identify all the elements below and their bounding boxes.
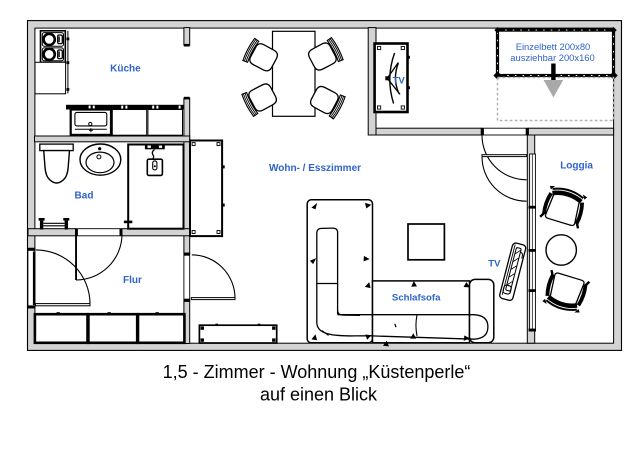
svg-text:ausziehbar 200x160: ausziehbar 200x160 xyxy=(510,52,594,63)
svg-text:Bad: Bad xyxy=(75,191,94,202)
svg-text:TV: TV xyxy=(488,259,501,270)
svg-text:Loggia: Loggia xyxy=(560,160,593,171)
svg-text:Flur: Flur xyxy=(123,275,142,286)
svg-text:1,5 - Zimmer - Wohnung „Küsten: 1,5 - Zimmer - Wohnung „Küstenperle“ xyxy=(163,362,471,382)
svg-text:Einzelbett 200x80: Einzelbett 200x80 xyxy=(516,41,591,52)
svg-text:Wohn- / Esszimmer: Wohn- / Esszimmer xyxy=(269,163,361,174)
svg-text:Schlafsofa: Schlafsofa xyxy=(392,293,441,304)
svg-text:Küche: Küche xyxy=(110,63,141,74)
svg-text:TV: TV xyxy=(393,76,406,87)
svg-text:auf einen Blick: auf einen Blick xyxy=(260,385,378,405)
